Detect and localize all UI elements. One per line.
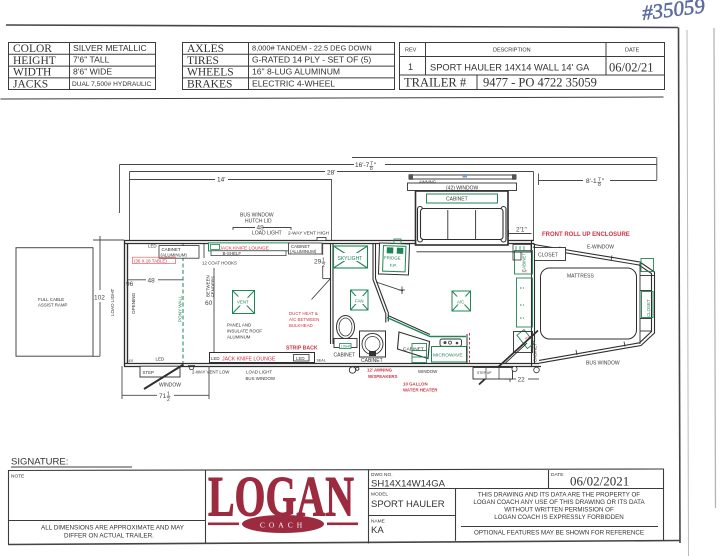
svg-text:(ALUMINUM): (ALUMINUM) bbox=[161, 253, 188, 258]
svg-text:14': 14' bbox=[217, 177, 225, 184]
svg-text:16'-7: 16'-7 bbox=[355, 162, 370, 169]
svg-text:ELECTRIC 4-WHEEL: ELECTRIC 4-WHEEL bbox=[252, 78, 335, 88]
svg-text:COACH: COACH bbox=[260, 521, 306, 530]
svg-text:SKYLIGHT: SKYLIGHT bbox=[338, 256, 363, 262]
svg-text:LOAD LIGHT: LOAD LIGHT bbox=[110, 288, 115, 316]
svg-text:2-WAY VENT HIGH: 2-WAY VENT HIGH bbox=[288, 231, 329, 236]
svg-text:2: 2 bbox=[167, 397, 170, 403]
svg-text:12' AWNING: 12' AWNING bbox=[367, 368, 393, 373]
svg-text:29: 29 bbox=[314, 259, 322, 266]
svg-text:PANEL AND: PANEL AND bbox=[227, 323, 251, 328]
svg-text:48: 48 bbox=[148, 277, 156, 284]
svg-text:BULKHEAD: BULKHEAD bbox=[289, 323, 313, 328]
svg-text:06/02/2021: 06/02/2021 bbox=[570, 474, 629, 489]
svg-text:LED: LED bbox=[148, 244, 157, 249]
svg-text:VENT: VENT bbox=[237, 300, 249, 305]
svg-text:OPTIONAL FEATURES MAY BE SHOWN: OPTIONAL FEATURES MAY BE SHOWN FOR REFER… bbox=[474, 530, 644, 537]
svg-text:16" 8-LUG ALUMINUM: 16" 8-LUG ALUMINUM bbox=[252, 67, 340, 77]
svg-text:BUS WINDOW: BUS WINDOW bbox=[586, 361, 620, 367]
svg-text:102: 102 bbox=[94, 295, 105, 302]
svg-text:10 GALLON: 10 GALLON bbox=[403, 382, 428, 387]
svg-text:JACKS: JACKS bbox=[13, 79, 48, 91]
svg-text:LED: LED bbox=[211, 356, 220, 361]
svg-text:FULL CABLE: FULL CABLE bbox=[38, 297, 64, 302]
svg-text:LOGAN COACH IS EXPRESSLY FORBI: LOGAN COACH IS EXPRESSLY FORBIDDEN bbox=[494, 514, 623, 521]
svg-text:MATTRESS: MATTRESS bbox=[567, 274, 595, 280]
svg-text:LOAD LIGHT: LOAD LIGHT bbox=[252, 231, 282, 237]
svg-text:DUCT HEAT &: DUCT HEAT & bbox=[289, 311, 318, 316]
svg-text:FRONT ROLL UP ENCLOSURE: FRONT ROLL UP ENCLOSURE bbox=[542, 232, 630, 238]
svg-text:DIFFER ON ACTUAL TRAILER.: DIFFER ON ACTUAL TRAILER. bbox=[64, 533, 154, 540]
svg-text:CABINET: CABINET bbox=[334, 353, 356, 359]
svg-text:REV: REV bbox=[405, 48, 417, 54]
svg-text:(42) WINDOW: (42) WINDOW bbox=[446, 186, 479, 192]
svg-text:ASSIST RAMP: ASSIST RAMP bbox=[38, 303, 68, 308]
svg-text:AXLES: AXLES bbox=[187, 43, 224, 55]
svg-text:STEP UP: STEP UP bbox=[477, 371, 492, 375]
svg-text:SPORT HAULER 14X14 WALL 14' GA: SPORT HAULER 14X14 WALL 14' GA bbox=[430, 63, 590, 73]
svg-text:9477 - PO 4722 35059: 9477 - PO 4722 35059 bbox=[483, 76, 597, 90]
svg-text:THIS DRAWING AND ITS DATA ARE: THIS DRAWING AND ITS DATA ARE THE PROPER… bbox=[478, 492, 640, 499]
svg-text:CABINET: CABINET bbox=[361, 358, 383, 364]
svg-text:1: 1 bbox=[408, 62, 413, 72]
svg-text:B-SHELF: B-SHELF bbox=[223, 251, 242, 256]
svg-text:F.P.: F.P. bbox=[390, 263, 397, 268]
svg-text:60: 60 bbox=[205, 300, 213, 307]
svg-text:SH14X14W14GA: SH14X14W14GA bbox=[371, 479, 446, 490]
svg-text:STRIP BACK: STRIP BACK bbox=[286, 346, 318, 352]
svg-text:96: 96 bbox=[126, 281, 134, 288]
svg-text:DWG NO.: DWG NO. bbox=[371, 472, 393, 478]
svg-text:PONY WALL: PONY WALL bbox=[178, 295, 183, 322]
svg-text:4'0: 4'0 bbox=[129, 359, 134, 363]
svg-text:8,000# TANDEM - 22.5 DEG DOWN: 8,000# TANDEM - 22.5 DEG DOWN bbox=[252, 44, 372, 53]
svg-text:NOTE: NOTE bbox=[11, 474, 24, 480]
svg-text:8'-1: 8'-1 bbox=[586, 178, 597, 185]
svg-text:FENDERS: FENDERS bbox=[211, 276, 216, 297]
svg-text:CABINET: CABINET bbox=[403, 347, 424, 353]
svg-text:FRIDGE: FRIDGE bbox=[384, 255, 401, 261]
svg-text:LED: LED bbox=[296, 356, 305, 361]
svg-text:DUAL 7,500# HYDRAULIC: DUAL 7,500# HYDRAULIC bbox=[72, 81, 152, 88]
svg-text:W/SPEAKERS: W/SPEAKERS bbox=[368, 374, 398, 379]
svg-text:SPORT HAULER: SPORT HAULER bbox=[371, 499, 445, 510]
svg-text:LOAD LIGHT: LOAD LIGHT bbox=[246, 370, 272, 375]
svg-text:AWNING: AWNING bbox=[419, 180, 436, 185]
svg-text:BUS WINDOW: BUS WINDOW bbox=[246, 376, 276, 381]
svg-text:LOGAN COACH ANY USE OF THIS DR: LOGAN COACH ANY USE OF THIS DRAWING OR I… bbox=[473, 499, 645, 506]
svg-text:CABINET: CABINET bbox=[446, 197, 468, 203]
svg-text:E-WINDOW: E-WINDOW bbox=[587, 245, 614, 251]
svg-text:ALUMINUM: ALUMINUM bbox=[227, 335, 251, 340]
svg-text:8'6" WIDE: 8'6" WIDE bbox=[73, 67, 112, 77]
svg-text:LED: LED bbox=[156, 357, 165, 362]
svg-text:COLOR: COLOR bbox=[13, 43, 52, 55]
svg-text:12 COAT HOOKS: 12 COAT HOOKS bbox=[202, 261, 237, 266]
svg-text:F.P.: F.P. bbox=[522, 270, 528, 274]
svg-text:71: 71 bbox=[159, 393, 167, 400]
svg-text:(36 X 18 TABLE): (36 X 18 TABLE) bbox=[134, 259, 167, 264]
svg-text:2: 2 bbox=[322, 263, 325, 269]
svg-text:MICROWAVE: MICROWAVE bbox=[433, 353, 463, 359]
svg-text:STEP: STEP bbox=[143, 370, 155, 375]
svg-text:JACK KNIFE LOUNGE: JACK KNIFE LOUNGE bbox=[222, 356, 276, 362]
svg-text:A/C BETWEEN: A/C BETWEEN bbox=[289, 317, 319, 322]
svg-text:DESCRIPTION: DESCRIPTION bbox=[493, 48, 531, 54]
svg-text:8: 8 bbox=[598, 182, 601, 188]
svg-text:HEIGHT: HEIGHT bbox=[13, 55, 56, 67]
svg-text:KA: KA bbox=[371, 525, 384, 536]
svg-text:CLOSET: CLOSET bbox=[538, 253, 558, 259]
svg-text:LIGHT: LIGHT bbox=[341, 345, 351, 349]
svg-text:SEAL: SEAL bbox=[317, 359, 326, 363]
svg-text:FAN: FAN bbox=[355, 299, 364, 304]
svg-text:WINDOW: WINDOW bbox=[418, 369, 438, 374]
svg-text:A/C: A/C bbox=[457, 300, 464, 305]
svg-text:TRAILER #: TRAILER # bbox=[404, 76, 467, 90]
svg-text:DATE: DATE bbox=[625, 48, 640, 54]
svg-text:7'6" TALL: 7'6" TALL bbox=[73, 55, 110, 65]
svg-text:28': 28' bbox=[327, 170, 335, 177]
svg-text:CABINET: CABINET bbox=[533, 343, 538, 362]
svg-text:06/02/21: 06/02/21 bbox=[609, 61, 653, 75]
svg-text:MODEL: MODEL bbox=[371, 492, 388, 498]
svg-text:INSULATE ROOF: INSULATE ROOF bbox=[227, 329, 262, 334]
svg-text:WHEELS: WHEELS bbox=[187, 67, 234, 79]
svg-text:WIDTH: WIDTH bbox=[13, 67, 51, 79]
svg-text:WINDOW: WINDOW bbox=[159, 383, 181, 389]
svg-text:CLOSET: CLOSET bbox=[646, 299, 651, 317]
svg-text:DATE: DATE bbox=[551, 472, 563, 478]
svg-text:BRAKES: BRAKES bbox=[187, 79, 232, 91]
svg-text:SILVER METALLIC: SILVER METALLIC bbox=[73, 43, 147, 53]
svg-text:8: 8 bbox=[370, 166, 373, 172]
svg-text:CABINET: CABINET bbox=[162, 247, 181, 252]
svg-text:OPENING: OPENING bbox=[131, 292, 136, 314]
svg-text:G-RATED 14 PLY - SET OF (5): G-RATED 14 PLY - SET OF (5) bbox=[252, 55, 371, 65]
svg-text:NAME: NAME bbox=[371, 519, 385, 525]
svg-text:WITHOUT WRITTEN PERMISSION OF: WITHOUT WRITTEN PERMISSION OF bbox=[504, 507, 614, 514]
svg-text:2'1": 2'1" bbox=[516, 227, 527, 234]
svg-text:WATER HEATER: WATER HEATER bbox=[403, 388, 438, 393]
svg-text:SIGNATURE:: SIGNATURE: bbox=[11, 457, 68, 468]
svg-text:2-WAY VENT LOW: 2-WAY VENT LOW bbox=[192, 370, 230, 375]
svg-text:(ALUMINUM): (ALUMINUM) bbox=[290, 249, 317, 254]
svg-text:22: 22 bbox=[518, 377, 526, 384]
svg-text:ALL DIMENSIONS ARE APPROXIMATE: ALL DIMENSIONS ARE APPROXIMATE AND MAY bbox=[41, 525, 185, 532]
svg-text:TIRES: TIRES bbox=[187, 55, 219, 67]
